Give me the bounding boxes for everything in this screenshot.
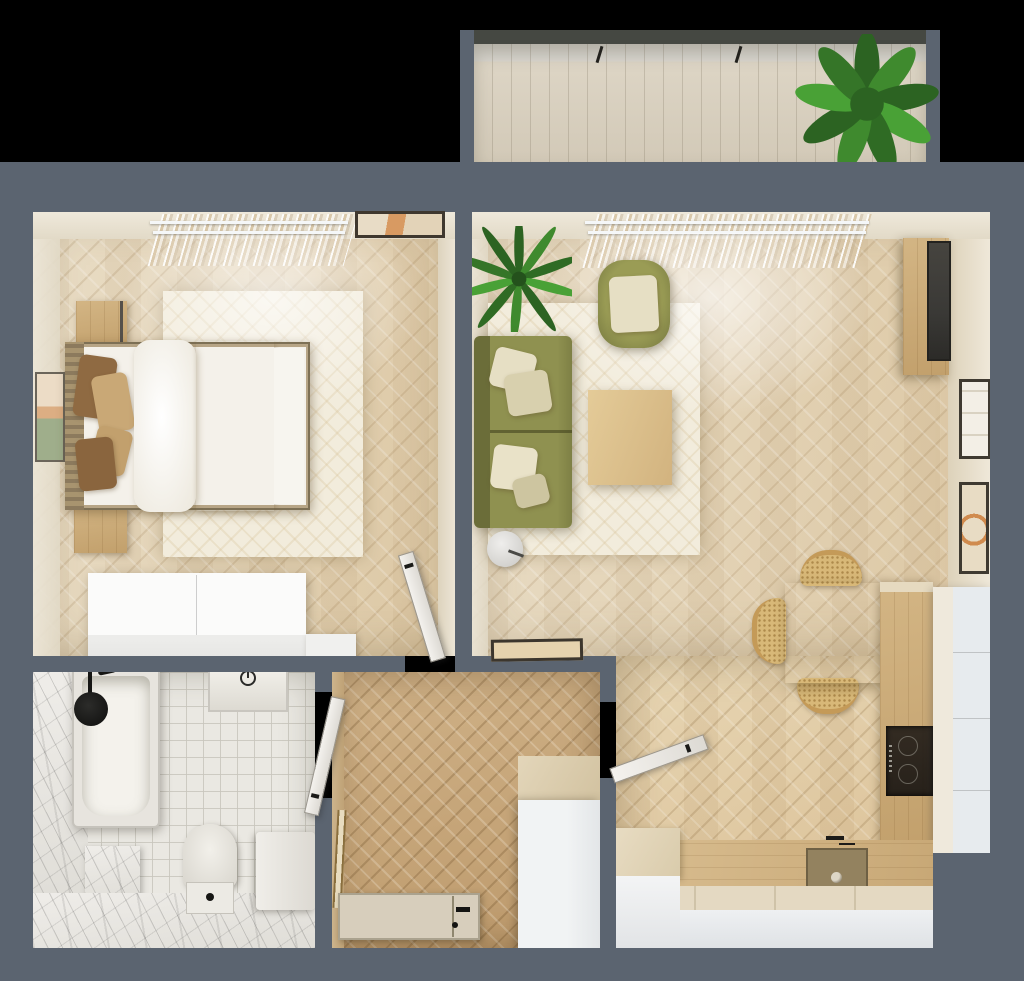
hallway-wardrobe-top (518, 756, 600, 802)
kitchen-left-cabinet-top (608, 828, 680, 878)
outer-wall-top (0, 162, 1024, 212)
tv-panel (927, 241, 951, 361)
entrance-door-panel-line (452, 896, 454, 937)
bedroom-door-handle (404, 563, 414, 569)
wall-art-arc (959, 482, 989, 574)
living-curtain-rail-2 (588, 231, 866, 234)
rain-shower-head (74, 692, 108, 726)
bedroom-wall-face-right (438, 239, 455, 656)
living-door-handle (685, 744, 691, 753)
entrance-door-handle (456, 907, 470, 912)
living-plant-palm (466, 226, 572, 332)
leaning-art (491, 638, 583, 662)
sink-drain (831, 872, 842, 883)
dining-chair-left (752, 598, 786, 664)
hob-ring-1 (898, 736, 918, 756)
dining-table (785, 583, 880, 683)
wall-art-small (959, 379, 991, 459)
entrance-door-slab (338, 893, 480, 940)
sofa-pillow-2 (503, 369, 553, 417)
wall-divider-bedroom-living (455, 212, 472, 672)
apartment-floor-plan (0, 0, 1024, 981)
outer-wall-bottom (0, 948, 1024, 981)
bedroom-wardrobe-side (306, 634, 356, 658)
toilet-bowl (183, 824, 237, 888)
bathroom-door-handle (311, 793, 320, 799)
sink-faucet (826, 836, 844, 840)
toilet-flush-button (206, 893, 214, 901)
outer-wall-left (0, 162, 33, 981)
bedroom-art-left (35, 372, 65, 462)
armchair-cushion (609, 275, 660, 333)
tall-cabinet-seam-1 (953, 652, 990, 653)
kitchen-left-cabinet-front (608, 876, 680, 948)
balcony-plant (792, 34, 942, 174)
hob-controls (889, 745, 892, 773)
coffee-table (588, 390, 672, 485)
nightstand-bottom (74, 503, 127, 553)
bed-throw-blanket (196, 341, 274, 511)
bathroom-washer (256, 832, 315, 910)
hob-ring-2 (898, 764, 918, 784)
wall-bedroom-bottom (0, 656, 405, 672)
entrance-door-lock (452, 922, 458, 928)
bedroom-curtain-rail-1 (150, 221, 348, 224)
kitchen-counter-right (880, 582, 933, 850)
bed-duvet (134, 340, 196, 512)
kitchen-counter-right-edge (880, 582, 933, 592)
hallway-wardrobe-front (518, 800, 600, 948)
sofa-seat-split (490, 430, 572, 433)
wall-hallway-kitchen-upper (600, 672, 616, 702)
kitchen-tall-cabinet (933, 587, 990, 853)
bed-pillow-brown-bottom (74, 436, 117, 492)
bedroom-art-top (355, 211, 445, 238)
bedroom-wardrobe-seam (196, 575, 197, 635)
bedroom-curtain-rail-2 (153, 231, 345, 234)
living-curtain-rail-1 (585, 221, 869, 224)
bed-sheet-strip (274, 348, 304, 504)
wall-hallway-kitchen-lower (600, 778, 616, 948)
outer-wall-corner-block (933, 853, 1024, 981)
wall-bathroom-hallway-upper (315, 672, 332, 692)
tall-cabinet-seam-2 (953, 718, 990, 719)
balcony-wall-left (460, 30, 474, 165)
bedroom-wardrobe-top (88, 573, 306, 659)
floor-lamp (487, 531, 523, 567)
wall-bathroom-hallway-lower (315, 798, 332, 948)
tall-cabinet-seam-3 (953, 790, 990, 791)
